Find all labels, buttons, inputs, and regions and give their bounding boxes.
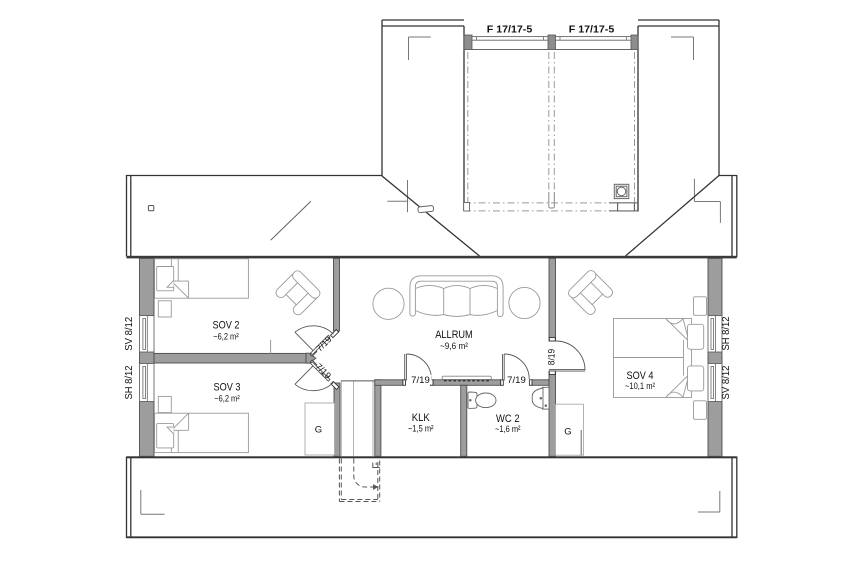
svg-text:8/19: 8/19	[547, 349, 557, 366]
svg-text:SOV 2: SOV 2	[213, 320, 240, 332]
svg-text:SV 8/12: SV 8/12	[720, 365, 732, 399]
svg-text:7/19: 7/19	[314, 334, 333, 353]
svg-text:SOV 3: SOV 3	[214, 382, 241, 394]
svg-text:KLK: KLK	[412, 412, 431, 424]
svg-text:SH 8/12: SH 8/12	[720, 316, 732, 350]
svg-text:SV 8/12: SV 8/12	[123, 317, 135, 351]
svg-text:~9,6 m²: ~9,6 m²	[440, 341, 468, 352]
svg-text:WC 2: WC 2	[496, 413, 520, 425]
svg-text:~1,5 m²: ~1,5 m²	[408, 423, 434, 434]
svg-text:SH 8/12: SH 8/12	[123, 365, 135, 399]
svg-text:G: G	[564, 427, 571, 438]
svg-text:~6,2 m²: ~6,2 m²	[214, 393, 240, 404]
svg-text:~1,6 m²: ~1,6 m²	[495, 424, 521, 435]
svg-text:G: G	[315, 425, 322, 436]
svg-text:ALLRUM: ALLRUM	[435, 329, 473, 341]
svg-text:~6,2 m²: ~6,2 m²	[213, 331, 239, 342]
svg-text:7/19: 7/19	[411, 375, 430, 385]
svg-text:7/19: 7/19	[507, 375, 526, 385]
svg-text:~10,1 m²: ~10,1 m²	[625, 381, 655, 392]
svg-text:F 17/17-5: F 17/17-5	[487, 25, 533, 36]
svg-text:7/19: 7/19	[314, 361, 333, 380]
svg-text:F 17/17-5: F 17/17-5	[569, 25, 615, 36]
